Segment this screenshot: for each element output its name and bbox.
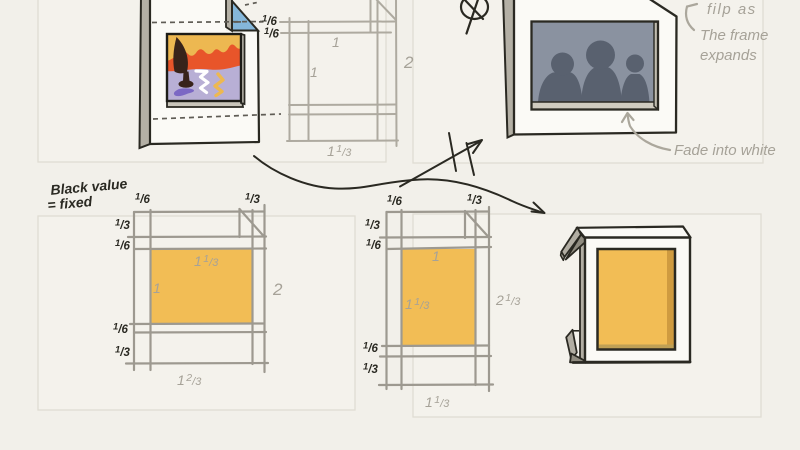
svg-text:Fade into white: Fade into white xyxy=(674,142,776,159)
svg-text:1: 1 xyxy=(432,248,440,264)
svg-text:2: 2 xyxy=(272,280,283,299)
svg-text:filp as: filp as xyxy=(707,1,757,18)
svg-text:The frame: The frame xyxy=(700,27,768,44)
svg-text:expands: expands xyxy=(700,47,757,64)
svg-text:1: 1 xyxy=(310,64,318,80)
svg-text:2: 2 xyxy=(403,53,414,72)
svg-text:1: 1 xyxy=(153,280,161,296)
svg-text:1: 1 xyxy=(332,34,340,50)
